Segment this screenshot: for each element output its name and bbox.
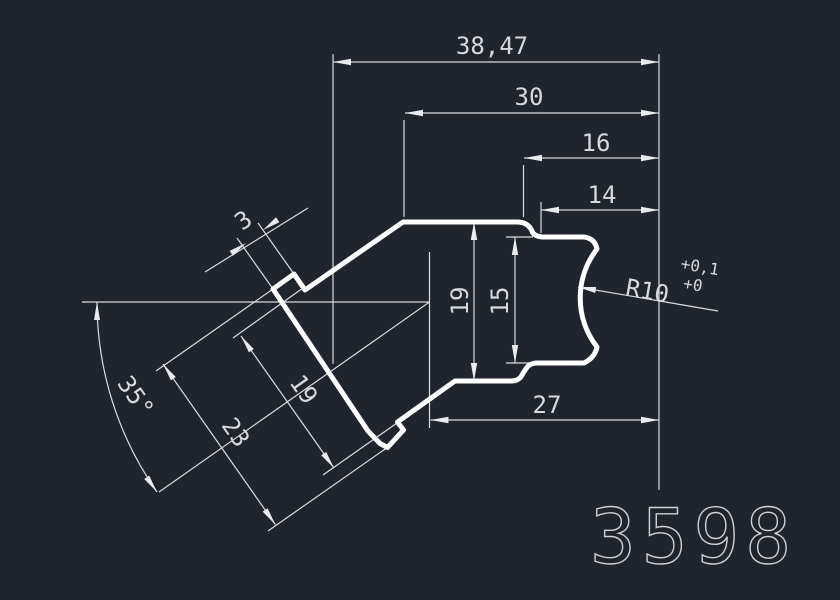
cad-drawing-viewport[interactable]: 38,47 30 16 14 27 19 15 19 23 3 35° R10 …: [0, 0, 840, 600]
arrow-angle-top: [94, 302, 100, 320]
arrow-overall-left: [333, 59, 351, 65]
extension-line-23-top: [156, 289, 273, 371]
arrow-30-left: [405, 110, 423, 116]
dim-line-23-slanted: [163, 364, 275, 525]
arrow-30-right: [641, 110, 659, 116]
arrow-16-left: [524, 155, 542, 161]
arrow-overall-right: [641, 59, 659, 65]
arrow-27-right: [641, 417, 659, 423]
dim-27-label: 27: [533, 391, 562, 419]
arrow-3-outer-left: [230, 243, 246, 256]
arrow-16-right: [641, 155, 659, 161]
dim-16-label: 16: [582, 129, 611, 157]
dim-3-label: 3: [229, 205, 257, 236]
arrow-angle-bottom: [144, 476, 157, 492]
dimension-lines: [82, 54, 718, 531]
arrow-27-left: [431, 417, 449, 423]
dim-19-vertical-label: 19: [446, 287, 474, 316]
dim-radius-tol-lower: +0: [682, 274, 704, 296]
extension-line-19s-top: [233, 288, 303, 338]
dim-14-label: 14: [588, 181, 617, 209]
cad-canvas: 38,47 30 16 14 27 19 15 19 23 3 35° R10 …: [0, 0, 840, 600]
dim-line-3: [205, 208, 308, 272]
dim-19-slanted-label: 19: [284, 370, 324, 410]
dim-23-slanted-label: 23: [216, 413, 256, 453]
arrow-3-outer-right: [263, 217, 279, 230]
dim-30-label: 30: [515, 83, 544, 111]
arrow-19v-top: [471, 222, 477, 240]
arrow-19s-bottom: [321, 452, 334, 468]
arrow-15v-top: [512, 237, 518, 255]
extension-line-3-a: [258, 223, 294, 274]
part-number: 3598: [590, 492, 797, 581]
arrow-19v-bottom: [471, 363, 477, 381]
dim-radius-label: R10: [624, 274, 672, 309]
arrow-19s-top: [241, 336, 254, 352]
arrow-23-bottom: [263, 508, 276, 524]
dim-overall-width-label: 38,47: [456, 32, 528, 60]
arrow-23-top: [163, 364, 176, 380]
arrow-14-left: [541, 207, 559, 213]
arrow-15v-bottom: [512, 345, 518, 363]
arrow-14-right: [641, 207, 659, 213]
dim-15-vertical-label: 15: [486, 287, 514, 316]
dim-angle-label: 35°: [112, 371, 160, 423]
